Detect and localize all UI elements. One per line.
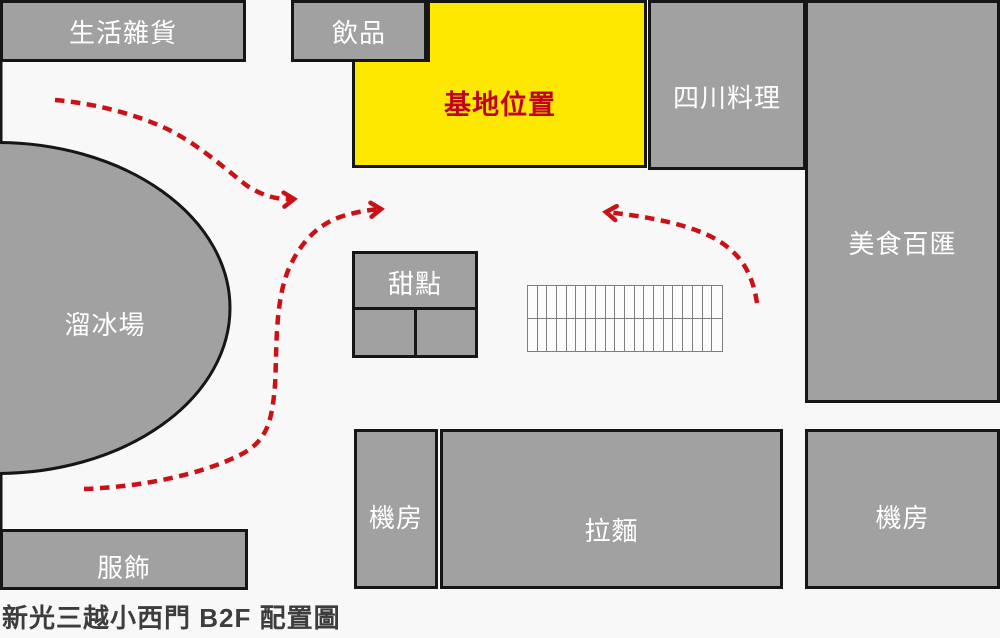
- hatched-cell: [547, 319, 557, 352]
- area-machine-room-right: 機房: [805, 429, 1000, 589]
- hatched-cell: [703, 319, 713, 352]
- hatched-cell: [615, 319, 625, 352]
- area-dessert-cell-right: [417, 310, 476, 355]
- area-food-court-label: 美食百匯: [848, 224, 956, 261]
- hatched-cell: [703, 286, 713, 319]
- hatched-cell: [625, 286, 635, 319]
- area-clothing: 服飾: [0, 529, 248, 590]
- area-dessert-top-cell: 甜點: [355, 254, 475, 310]
- area-dessert-cell-left: [355, 310, 417, 355]
- hatched-cell: [654, 286, 664, 319]
- hatched-cell: [644, 286, 654, 319]
- area-lifestyle-goods-label: 生活雜貨: [69, 13, 177, 50]
- page-title: 新光三越小西門 B2F 配置圖: [2, 598, 341, 635]
- area-machine-room-left: 機房: [354, 429, 438, 589]
- hatched-cell: [654, 319, 664, 352]
- hatched-cell: [635, 319, 645, 352]
- hatched-cell: [673, 319, 683, 352]
- hatched-cell: [635, 286, 645, 319]
- hatched-cell: [712, 286, 722, 319]
- hatched-cell: [528, 319, 538, 352]
- hatched-cell: [683, 319, 693, 352]
- hatched-cell: [644, 319, 654, 352]
- site-location-label-text: 基地位置: [444, 83, 556, 122]
- hatched-cell: [586, 319, 596, 352]
- hatched-cell: [586, 286, 596, 319]
- hatched-cell: [557, 319, 567, 352]
- hatched-cell: [712, 319, 722, 352]
- hatched-cell: [673, 286, 683, 319]
- hatched-cell: [615, 286, 625, 319]
- area-ramen-label: 拉麵: [584, 511, 638, 548]
- site-location-label: 基地位置: [400, 83, 600, 122]
- area-drinks: 飲品: [291, 0, 427, 62]
- hatched-cell: [606, 286, 616, 319]
- hatched-cell: [538, 286, 548, 319]
- hatched-cell: [683, 286, 693, 319]
- ice-rink-label-text: 溜冰場: [64, 305, 145, 342]
- hatched-cell: [547, 286, 557, 319]
- hatched-cell: [693, 319, 703, 352]
- area-lifestyle-goods: 生活雜貨: [0, 0, 246, 62]
- floor-plan-canvas: 生活雜貨 飲品 四川料理 美食百匯 甜點 機房 拉麵 機房 服飾 基地位置 溜冰…: [0, 0, 1000, 638]
- area-drinks-label: 飲品: [332, 13, 386, 50]
- hatched-cell: [576, 286, 586, 319]
- hatched-cell: [538, 319, 548, 352]
- area-dessert: 甜點: [352, 251, 478, 358]
- hatched-cell: [664, 319, 674, 352]
- area-food-court: 美食百匯: [805, 0, 1000, 403]
- area-machine-room-right-label: 機房: [875, 498, 929, 535]
- hatched-area: [527, 285, 723, 352]
- area-sichuan-cuisine: 四川料理: [648, 0, 806, 170]
- hatched-cell: [567, 319, 577, 352]
- area-clothing-label: 服飾: [97, 548, 151, 585]
- hatched-cell: [625, 319, 635, 352]
- area-ramen: 拉麵: [440, 429, 783, 589]
- hatched-cell: [557, 286, 567, 319]
- hatched-cell: [596, 286, 606, 319]
- hatched-cell: [693, 286, 703, 319]
- area-machine-room-left-label: 機房: [369, 498, 423, 535]
- hatched-cell: [664, 286, 674, 319]
- hatched-cell: [596, 319, 606, 352]
- hatched-cell: [576, 319, 586, 352]
- area-dessert-label: 甜點: [388, 264, 442, 301]
- ice-rink-label: 溜冰場: [40, 305, 170, 342]
- hatched-cell: [567, 286, 577, 319]
- area-dessert-bottom-cells: [355, 310, 475, 355]
- hatched-cell: [528, 286, 538, 319]
- area-sichuan-cuisine-label: 四川料理: [673, 78, 781, 115]
- hatched-cell: [606, 319, 616, 352]
